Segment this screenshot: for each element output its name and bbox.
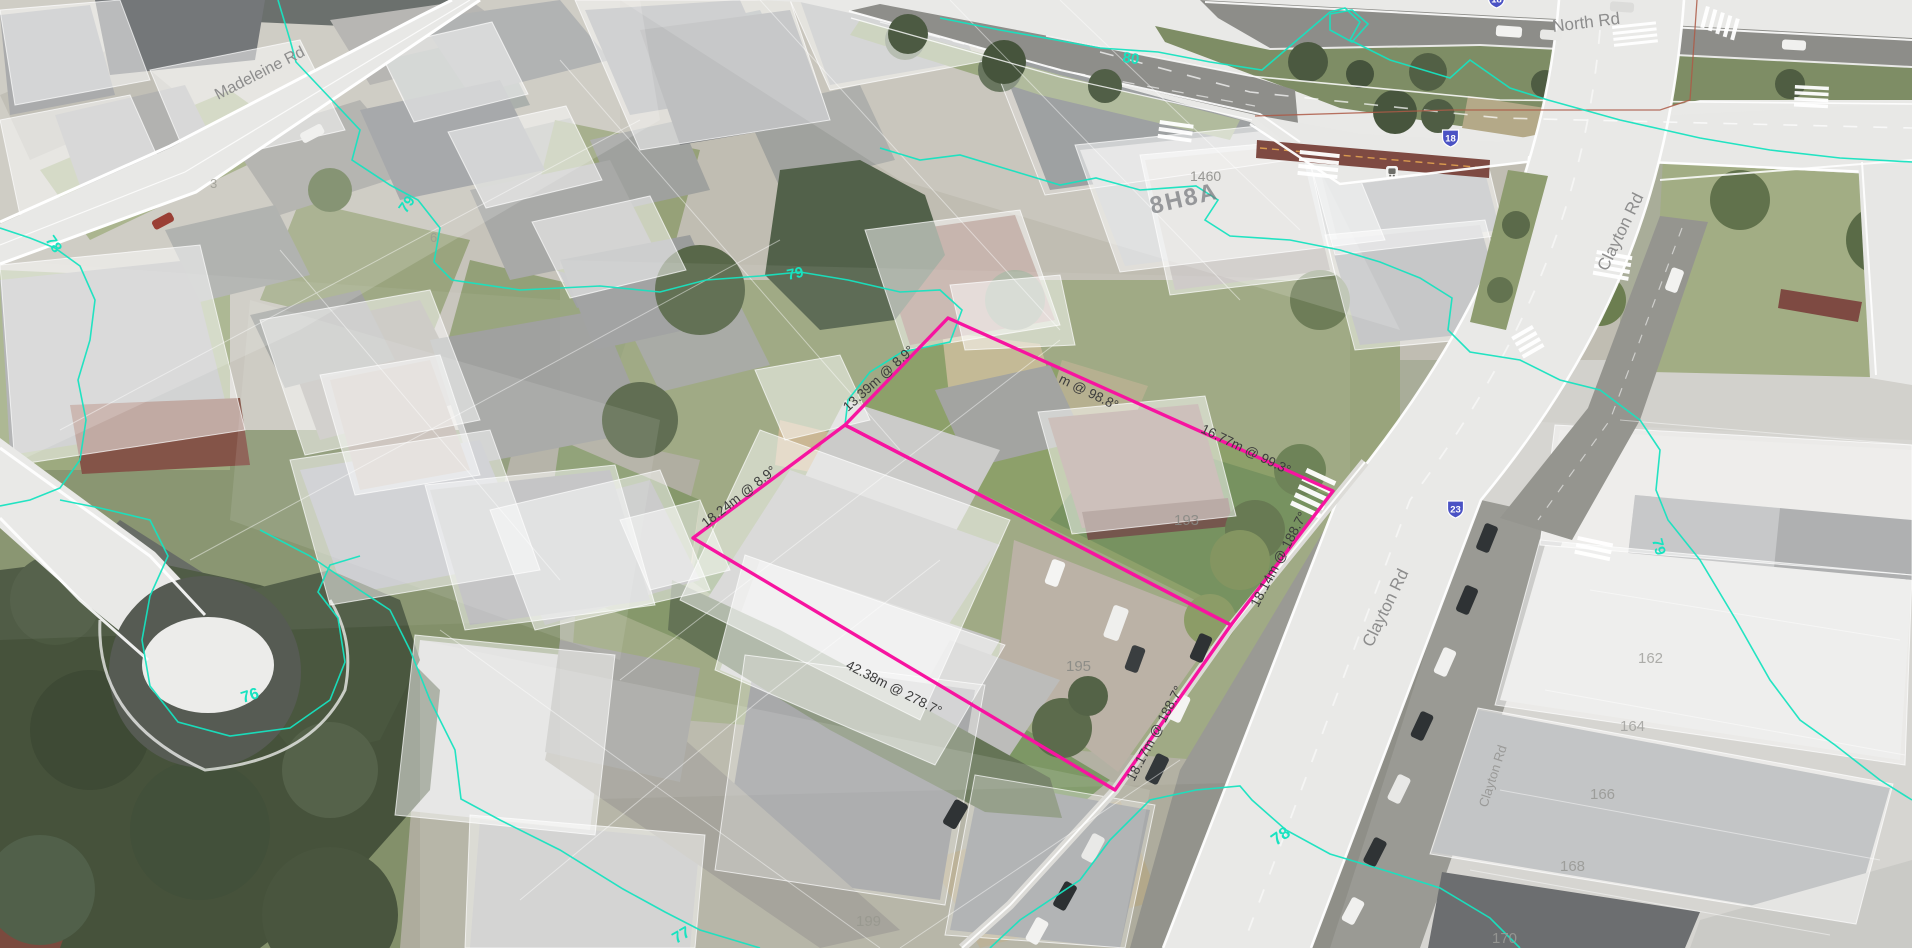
svg-text:6: 6 xyxy=(430,230,437,245)
svg-text:199: 199 xyxy=(856,913,881,930)
svg-text:170: 170 xyxy=(1492,930,1517,947)
svg-text:3: 3 xyxy=(210,176,217,191)
svg-text:1460: 1460 xyxy=(1190,168,1221,184)
svg-text:193: 193 xyxy=(1174,512,1199,529)
svg-text:166: 166 xyxy=(1590,786,1615,803)
svg-text:168: 168 xyxy=(1560,858,1585,875)
svg-text:18: 18 xyxy=(1491,0,1502,6)
svg-text:164: 164 xyxy=(1620,718,1645,735)
svg-text:18: 18 xyxy=(1445,134,1456,145)
svg-text:162: 162 xyxy=(1638,650,1663,667)
svg-text:23: 23 xyxy=(1450,505,1461,516)
svg-text:79: 79 xyxy=(785,264,805,284)
svg-text:195: 195 xyxy=(1066,658,1091,675)
svg-text:80: 80 xyxy=(1121,49,1140,68)
